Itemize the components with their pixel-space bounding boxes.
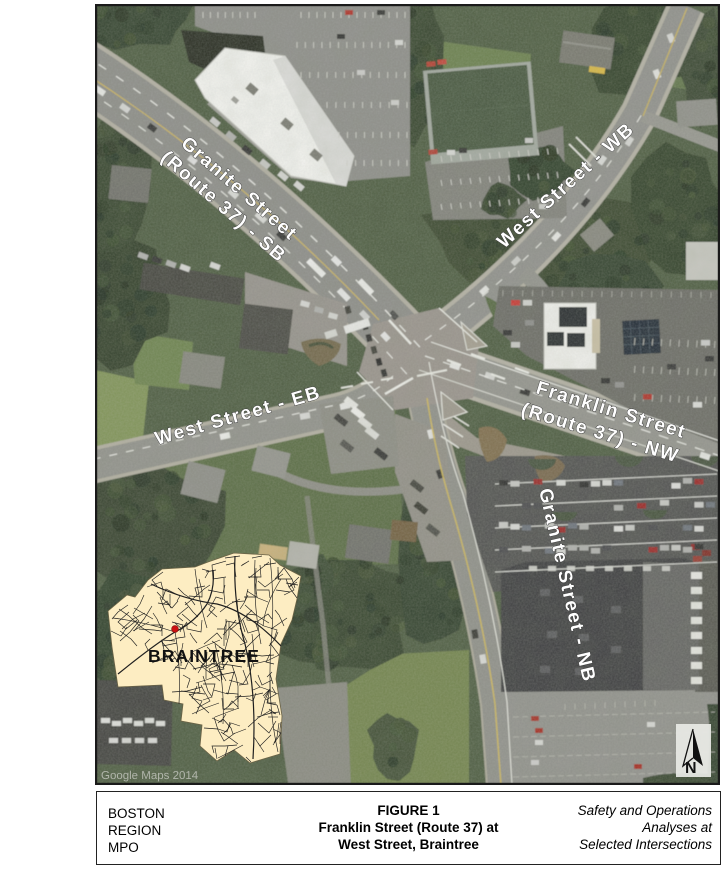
svg-text:Google Maps 2014: Google Maps 2014 bbox=[101, 770, 199, 782]
svg-text:BRAINTREE: BRAINTREE bbox=[148, 646, 260, 666]
svg-text:N: N bbox=[685, 760, 697, 777]
